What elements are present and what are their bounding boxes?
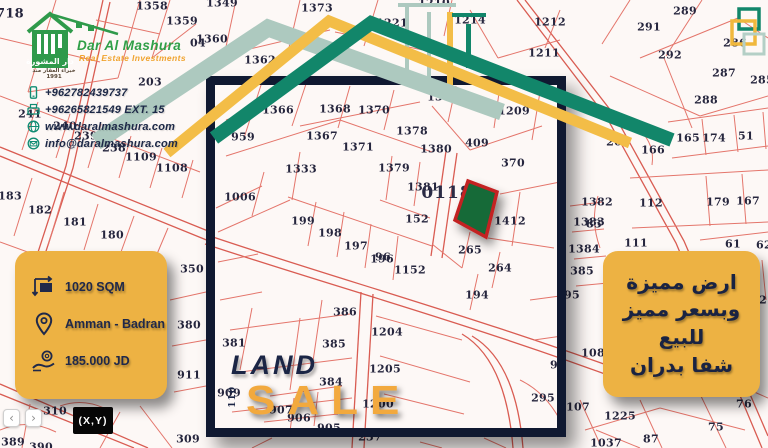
price-row: 185.000 JD [31, 349, 157, 373]
contact-row-mobile: +962782439737 [26, 84, 178, 101]
price-hand-coin-icon [31, 349, 57, 373]
location-row: Amman - Badran [31, 312, 157, 336]
globe-icon [26, 120, 41, 133]
contact-row-email: info@daralmashura.com [26, 135, 178, 152]
contact-fax: +96265821549 EXT. 15 [45, 104, 165, 116]
land-text: LAND [231, 350, 318, 381]
location-value: Amman - Badran [65, 317, 165, 331]
contact-mobile: +962782439737 [45, 87, 127, 99]
property-info-card: 1020 SQM Amman - Badran 185.000 JD [15, 251, 167, 399]
vertical-street-number: 110 [228, 386, 238, 408]
coordinates-toggle[interactable]: (X,Y) [73, 407, 113, 434]
house-logo-arabic: دار المشورة [26, 57, 74, 66]
area-row: 1020 SQM [31, 275, 157, 299]
real-estate-flyer: 7181358135913491360137313621221121012141… [0, 0, 768, 448]
email-icon [26, 137, 41, 150]
brand-name: Dar Al Mashura [77, 38, 181, 53]
contact-list: +962782439737 +96265821549 EXT. 15 www.d… [26, 84, 178, 152]
price-value: 185.000 JD [65, 354, 130, 368]
area-dimensions-icon [31, 275, 57, 299]
arabic-offer-card: ارض مميزة وبسعر مميز للبيع شفا بدران [603, 251, 760, 397]
map-prev-button[interactable]: ‹ [3, 409, 20, 427]
contact-website: www.daralmashura.com [45, 121, 175, 133]
arabic-line-1: ارض مميزة [603, 269, 760, 297]
arabic-line-4: شفا بدران [603, 352, 760, 380]
brand-arabic-tagline: خبراء العقار منذ 1991 [24, 68, 84, 80]
brand-tagline: Real Estate Investments [79, 53, 186, 63]
sale-text: SALE [246, 378, 411, 424]
contact-row-website: www.daralmashura.com [26, 118, 178, 135]
area-value: 1020 SQM [65, 280, 125, 294]
arabic-line-3: للبيع [603, 324, 760, 352]
contact-row-fax: +96265821549 EXT. 15 [26, 101, 178, 118]
contact-email: info@daralmashura.com [45, 138, 178, 150]
fax-icon [26, 103, 41, 116]
mobile-icon [26, 86, 41, 99]
arabic-line-2: وبسعر مميز [603, 296, 760, 324]
location-pin-icon [31, 312, 57, 336]
map-next-button[interactable]: › [25, 409, 42, 427]
